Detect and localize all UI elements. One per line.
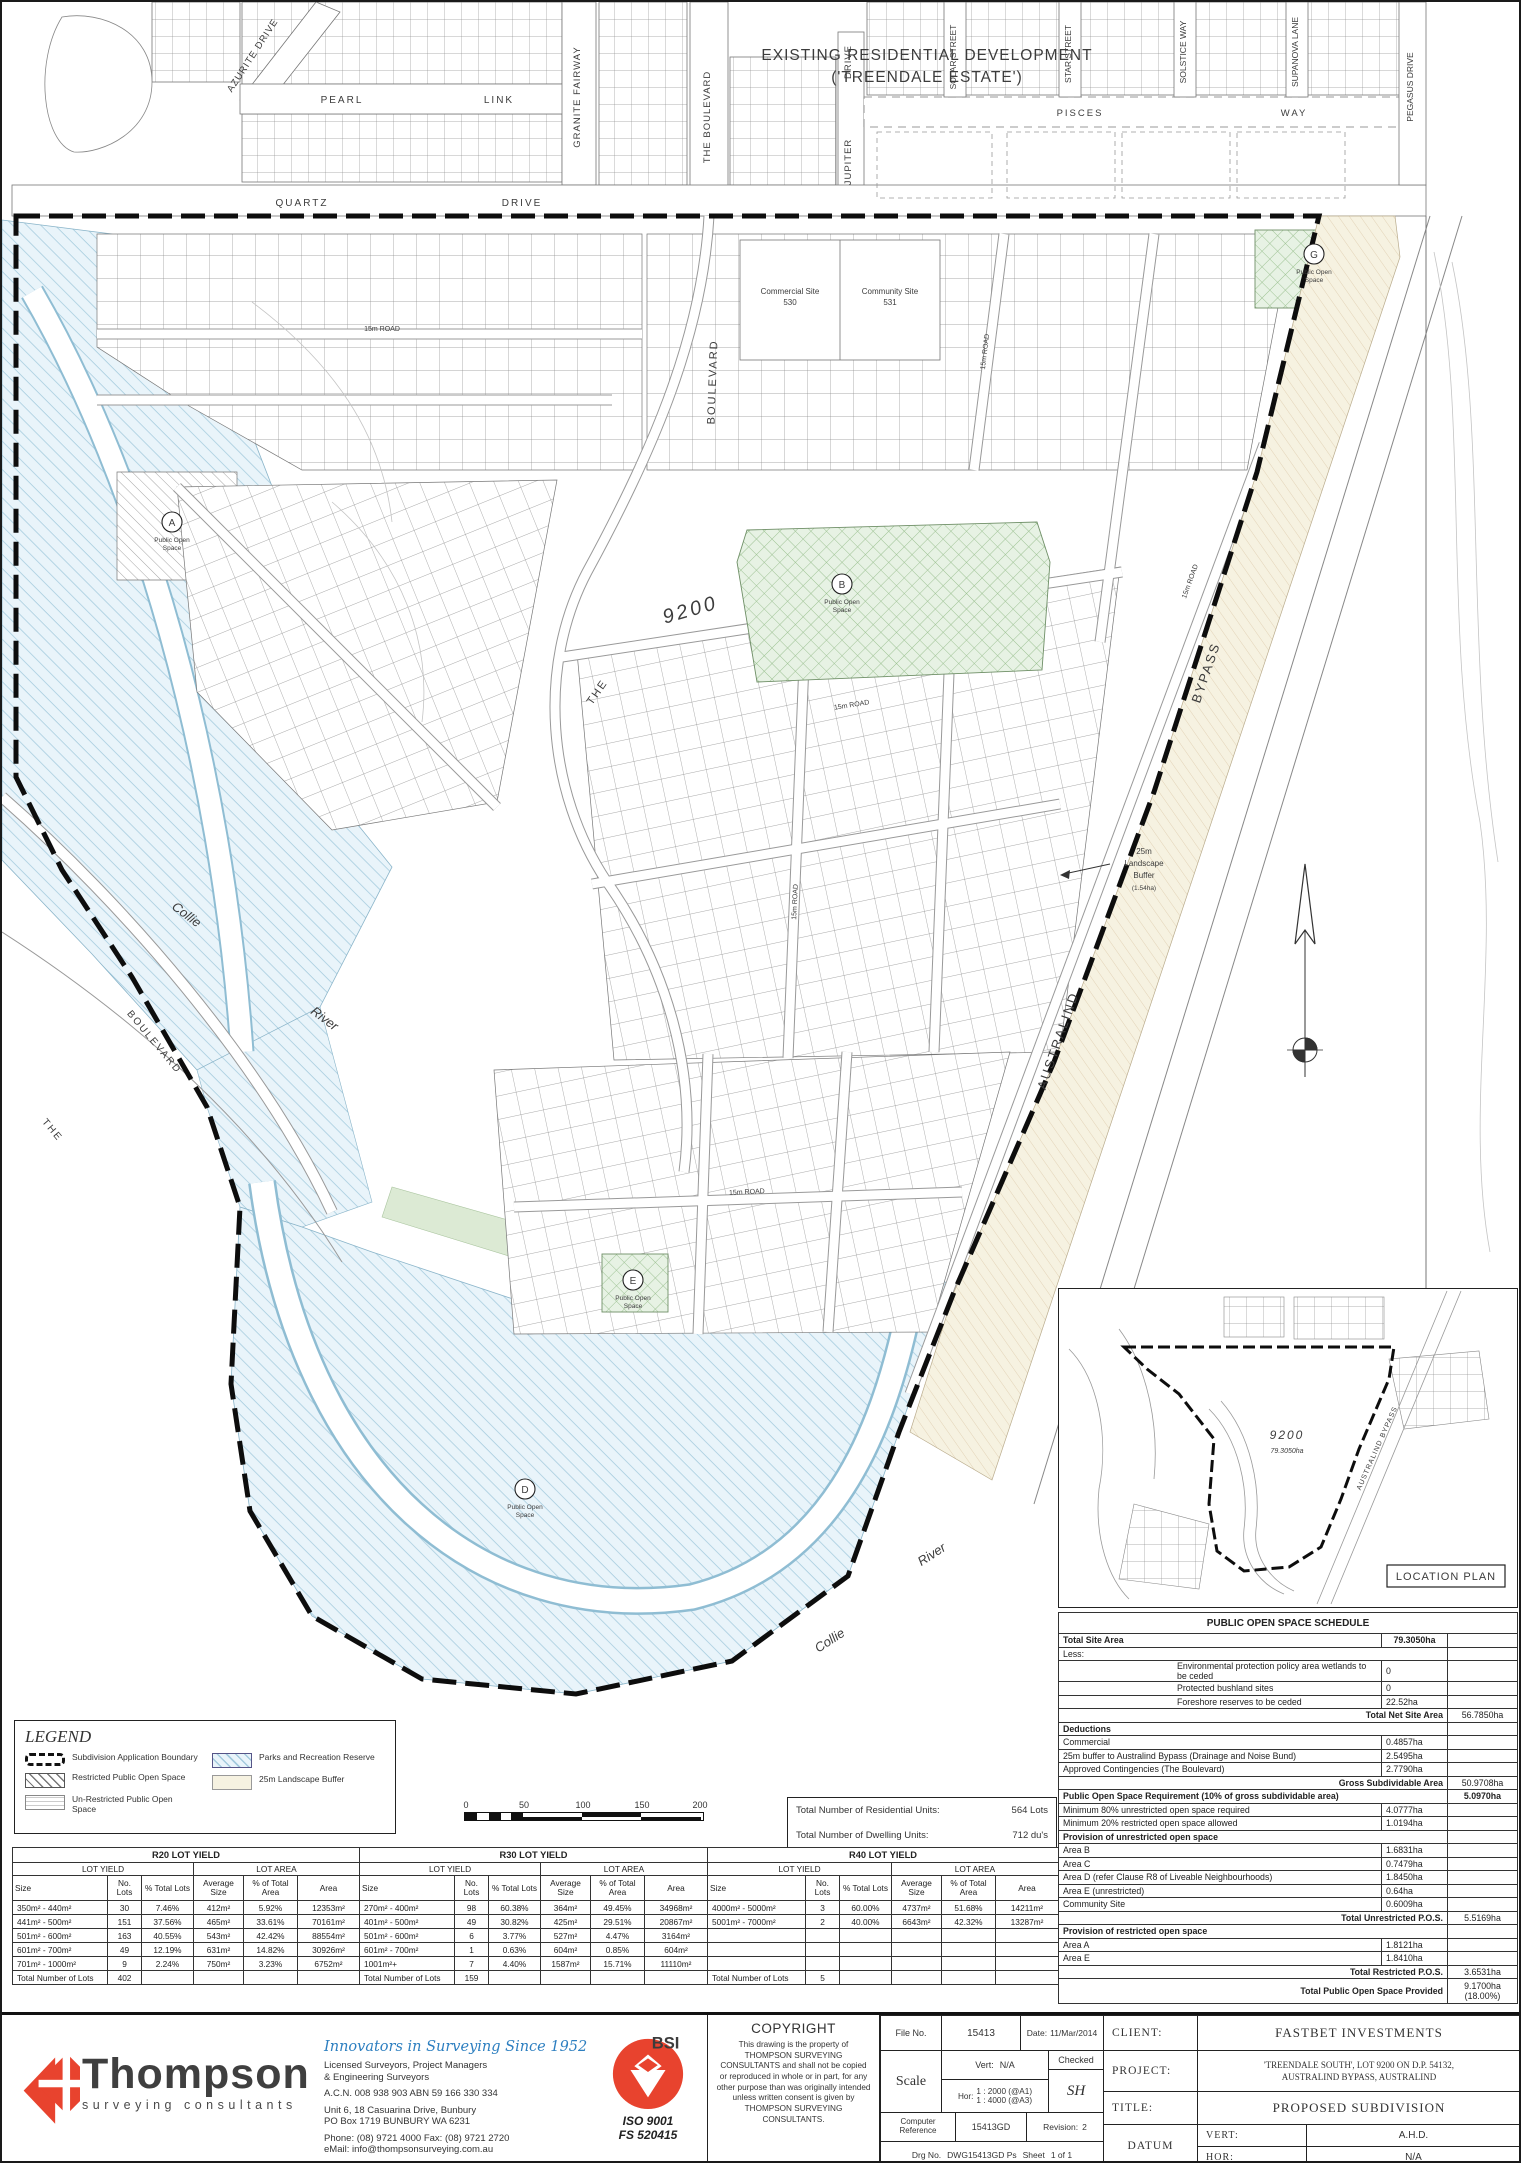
table-cell: 2.5495ha — [1381, 1749, 1447, 1763]
unrestricted-pos-symbol — [25, 1795, 65, 1810]
table-row: 501m² - 600m²16340.55%543m²42.42%88554m² — [13, 1929, 360, 1943]
table-cell: 30.82% — [489, 1915, 541, 1929]
legend-item-unrestricted-pos: Un-Restricted Public Open Space — [25, 1795, 198, 1815]
pos-caption: Public Open — [507, 1504, 543, 1511]
table-cell: Minimum 80% unrestricted open space requ… — [1059, 1803, 1382, 1817]
table-title: R40 LOT YIELD — [708, 1848, 1059, 1863]
pos-caption: Space — [624, 1303, 643, 1310]
dwelling-units-row: Total Number of Dwelling Units: 712 du's — [796, 1830, 1048, 1841]
table-cell: 22.52ha — [1381, 1695, 1447, 1709]
table-row: 601m² - 700m²4912.19%631m²14.82%30926m² — [13, 1943, 360, 1957]
table-cell: 1001m²+ — [360, 1957, 455, 1971]
units-value: 564 Lots — [1012, 1805, 1048, 1816]
table-row: 270m² - 400m²9860.38%364m²49.45%34968m² — [360, 1901, 708, 1915]
datum-hor-label: HOR: — [1197, 2146, 1307, 2163]
location-plan-inset: 9200 79.3050ha AUSTRALIND BYPASS LOCATIO… — [1058, 1288, 1518, 1608]
landscape-buffer-symbol — [212, 1775, 252, 1790]
table-cell: 441m² - 500m² — [13, 1915, 108, 1929]
table-row: 1001m²+74.40%1587m²15.71%11110m² — [360, 1957, 708, 1971]
table-cell: 40.55% — [142, 1929, 194, 1943]
table-cell: 34968m² — [645, 1901, 708, 1915]
group-header: LOT YIELD — [13, 1863, 194, 1876]
col-header: Area — [996, 1876, 1059, 1901]
table-cell: 6752m² — [298, 1957, 360, 1971]
location-plan-lot: 9200 — [1270, 1428, 1305, 1442]
legend-item-buffer: 25m Landscape Buffer — [212, 1775, 385, 1790]
col-header: Average Size — [194, 1876, 244, 1901]
schedule-total-label: Total Restricted P.O.S. — [1059, 1965, 1448, 1979]
thompson-line2: & Engineering Surveyors — [324, 2072, 589, 2084]
col-header: No. Lots — [455, 1876, 489, 1901]
table-row: Protected bushland sites0 — [1059, 1682, 1518, 1696]
table-cell: 60.38% — [489, 1901, 541, 1915]
table-cell: 3.77% — [489, 1929, 541, 1943]
table-cell — [1447, 1938, 1517, 1952]
total-label: Total Number of Lots — [13, 1971, 108, 1985]
table-cell — [708, 1943, 806, 1957]
sheet-label: Sheet — [1023, 2150, 1045, 2160]
bsi-block: BSI ISO 9001 FS 520415 — [600, 2033, 696, 2142]
table-row: Approved Contingencies (The Boulevard)2.… — [1059, 1763, 1518, 1777]
table-cell: 2.7790ha — [1381, 1763, 1447, 1777]
pos-caption: Space — [163, 545, 182, 552]
table-cell — [942, 1943, 996, 1957]
table-cell: 1.8410ha — [1381, 1952, 1447, 1966]
bsi-logo: BSI — [609, 2033, 687, 2111]
group-header: LOT YIELD — [360, 1863, 541, 1876]
scale-hor-a1: 1 : 2000 (@A1) — [976, 2087, 1032, 2096]
legend-item-label: 25m Landscape Buffer — [259, 1775, 344, 1785]
table-cell: 4.47% — [591, 1929, 645, 1943]
schedule-value: 79.3050ha — [1381, 1634, 1447, 1648]
thompson-phone: Phone: (08) 9721 4000 Fax: (08) 9721 272… — [324, 2133, 589, 2145]
table-cell: 42.42% — [244, 1929, 298, 1943]
table-cell — [1447, 1857, 1517, 1871]
street-label-pegasus: PEGASUS DRIVE — [1405, 52, 1415, 122]
bsi-fs: FS 520415 — [600, 2128, 696, 2142]
thompson-addr2: PO Box 1719 BUNBURY WA 6231 — [324, 2116, 589, 2128]
r40-lot-yield-table: R40 LOT YIELD LOT YIELD LOT AREA Size No… — [707, 1847, 1059, 1985]
table-cell: 3.23% — [244, 1957, 298, 1971]
schedule-total-label: Total Unrestricted P.O.S. — [1059, 1911, 1448, 1925]
col-header: % of Total Area — [942, 1876, 996, 1901]
table-cell — [1447, 1952, 1517, 1966]
street-label-pisces-way: WAY — [1281, 108, 1308, 119]
table-cell — [708, 1929, 806, 1943]
table-cell: 527m² — [541, 1929, 591, 1943]
schedule-value: 5.0970ha — [1447, 1790, 1517, 1804]
buffer-note-line: (1.54ha) — [1132, 885, 1156, 892]
scale-hor-cell: Hor: 1 : 2000 (@A1) 1 : 4000 (@A3) — [941, 2079, 1049, 2113]
residential-units-row: Total Number of Residential Units: 564 L… — [796, 1805, 1048, 1816]
drg-value: DWG15413GD Ps — [947, 2150, 1016, 2160]
public-open-space-schedule: PUBLIC OPEN SPACE SCHEDULE Total Site Ar… — [1058, 1612, 1518, 2004]
pos-caption: Public Open — [154, 537, 190, 544]
datum-vert-value: A.H.D. — [1306, 2124, 1521, 2147]
schedule-total-label: Gross Subdividable Area — [1059, 1776, 1448, 1790]
table-row: 501m² - 600m²63.77%527m²4.47%3164m² — [360, 1929, 708, 1943]
units-label: Total Number of Dwelling Units: — [796, 1830, 929, 1841]
sheet-title-label: TITLE: — [1103, 2091, 1198, 2125]
thompson-addr1: Unit 6, 18 Casuarina Drive, Bunbury — [324, 2105, 589, 2117]
table-cell: Community Site — [1059, 1898, 1382, 1912]
schedule-total-label: Total Public Open Space Provided — [1059, 1979, 1448, 2004]
table-cell: 40.00% — [840, 1915, 892, 1929]
table-cell: 42.32% — [942, 1915, 996, 1929]
pos-caption: Space — [516, 1512, 535, 1519]
legend: LEGEND Subdivision Application Boundary … — [14, 1720, 396, 1834]
table-row: Minimum 20% restricted open space allowe… — [1059, 1817, 1518, 1831]
compref-value: 15413GD — [955, 2112, 1027, 2142]
subdivision-plan-sheet: Commercial Site 530 Community Site 531 — [0, 0, 1521, 2163]
table-row: Community Site0.6009ha — [1059, 1898, 1518, 1912]
legend-item-label: Parks and Recreation Reserve — [259, 1753, 375, 1763]
col-header: Average Size — [892, 1876, 942, 1901]
pos-letter: D — [521, 1485, 528, 1496]
date-cell: Date: 11/Mar/2014 — [1020, 2015, 1104, 2051]
col-header: % Total Lots — [840, 1876, 892, 1901]
table-cell: 7 — [455, 1957, 489, 1971]
table-cell: 0.4857ha — [1381, 1736, 1447, 1750]
table-row: 401m² - 500m²4930.82%425m²29.51%20867m² — [360, 1915, 708, 1929]
schedule-label: Total Site Area — [1059, 1634, 1382, 1648]
thompson-contact-block: Innovators in Surveying Since 1952 Licen… — [324, 2039, 589, 2156]
table-cell: 33.61% — [244, 1915, 298, 1929]
table-cell: 4.40% — [489, 1957, 541, 1971]
table-cell: 0.63% — [489, 1943, 541, 1957]
community-site-number: 531 — [883, 298, 897, 307]
table-cell: 11110m² — [645, 1957, 708, 1971]
road-label-15m: 15m ROAD — [364, 326, 400, 333]
table-cell: 70161m² — [298, 1915, 360, 1929]
table-cell: 25m buffer to Australind Bypass (Drainag… — [1059, 1749, 1382, 1763]
table-cell — [806, 1957, 840, 1971]
fileno-value: 15413 — [941, 2015, 1021, 2051]
street-label-boulevard-top: THE BOULEVARD — [702, 71, 713, 164]
buffer-note-line: Landscape — [1124, 859, 1164, 868]
commercial-site-number: 530 — [783, 298, 797, 307]
street-label-supanova: SUPANOVA LANE — [1290, 17, 1300, 87]
date-value: 11/Mar/2014 — [1050, 2028, 1097, 2038]
table-cell: 5.92% — [244, 1901, 298, 1915]
street-label-quartz-drive: DRIVE — [502, 198, 543, 209]
table-cell — [942, 1957, 996, 1971]
pos-caption: Space — [1305, 277, 1324, 284]
legend-item-parks: Parks and Recreation Reserve — [212, 1753, 385, 1768]
table-cell: 12353m² — [298, 1901, 360, 1915]
thompson-email: eMail: info@thompsonsurveying.com.au — [324, 2144, 589, 2156]
pos-letter: G — [1310, 250, 1318, 261]
table-cell: 270m² - 400m² — [360, 1901, 455, 1915]
table-cell: 0.6009ha — [1381, 1898, 1447, 1912]
table-cell: 601m² - 700m² — [13, 1943, 108, 1957]
col-header: Size — [13, 1876, 108, 1901]
table-cell: 1.0194ha — [1381, 1817, 1447, 1831]
scale-tick: 50 — [519, 1800, 529, 1810]
col-header: % Total Lots — [489, 1876, 541, 1901]
date-label: Date: — [1027, 2028, 1047, 2038]
table-row: 5001m² - 7000m²240.00%6643m²42.32%13287m… — [708, 1915, 1059, 1929]
buffer-note-line: Buffer — [1133, 871, 1155, 880]
table-cell: 2.24% — [142, 1957, 194, 1971]
table-row — [708, 1943, 1059, 1957]
table-row: Area E1.8410ha — [1059, 1952, 1518, 1966]
title-block: Thompson surveying consultants Innovator… — [2, 2012, 1521, 2163]
table-cell — [1447, 1884, 1517, 1898]
total-label: Total Number of Lots — [360, 1971, 455, 1985]
table-cell — [1447, 1817, 1517, 1831]
north-arrow — [1287, 864, 1323, 1077]
schedule-label: Less: — [1059, 1647, 1448, 1661]
street-label-solstice: SOLSTICE WAY — [1178, 20, 1188, 83]
project-label: PROJECT: — [1103, 2050, 1198, 2092]
scale-hor-a3: 1 : 4000 (@A3) — [976, 2096, 1032, 2105]
sheet-title-value: PROPOSED SUBDIVISION — [1197, 2091, 1521, 2125]
group-header: LOT AREA — [194, 1863, 360, 1876]
table-cell: 0 — [1381, 1682, 1447, 1696]
table-row: 441m² - 500m²15137.56%465m²33.61%70161m² — [13, 1915, 360, 1929]
table-cell — [1447, 1661, 1517, 1682]
street-label-link: LINK — [484, 95, 514, 106]
project-value: 'TREENDALE SOUTH', LOT 9200 ON D.P. 5413… — [1197, 2050, 1521, 2092]
schedule-total-value: 5.5169ha — [1447, 1911, 1517, 1925]
sheet-value: 1 of 1 — [1051, 2150, 1072, 2160]
group-header: LOT YIELD — [708, 1863, 892, 1876]
col-header: No. Lots — [108, 1876, 142, 1901]
table-cell — [840, 1957, 892, 1971]
table-cell — [996, 1943, 1059, 1957]
total-units-box: Total Number of Residential Units: 564 L… — [787, 1797, 1057, 1849]
table-cell: 1.8450ha — [1381, 1871, 1447, 1885]
checked-label: Checked — [1048, 2050, 1104, 2070]
checked-signature: SH — [1048, 2069, 1104, 2113]
project-line2: AUSTRALIND BYPASS, AUSTRALIND — [1282, 2071, 1436, 2083]
group-header: LOT AREA — [541, 1863, 708, 1876]
copyright-body: This drawing is the property of THOMPSON… — [716, 2040, 871, 2125]
table-cell: 4.0777ha — [1381, 1803, 1447, 1817]
table-cell: 0 — [1381, 1661, 1447, 1682]
table-cell: 350m² - 440m² — [13, 1901, 108, 1915]
table-cell: Commercial — [1059, 1736, 1382, 1750]
copyright-block: COPYRIGHT This drawing is the property o… — [707, 2015, 880, 2163]
datum-hor-value: N/A — [1306, 2146, 1521, 2163]
table-cell: 501m² - 600m² — [13, 1929, 108, 1943]
table-cell — [1447, 1898, 1517, 1912]
table-cell: 6643m² — [892, 1915, 942, 1929]
boundary-symbol — [25, 1753, 65, 1766]
col-header: Area — [298, 1876, 360, 1901]
table-cell: 364m² — [541, 1901, 591, 1915]
pos-letter: B — [839, 580, 846, 591]
schedule-total-value: 9.1700ha (18.00%) — [1447, 1979, 1517, 2004]
table-row — [708, 1929, 1059, 1943]
table-cell: 543m² — [194, 1929, 244, 1943]
table-cell: 7.46% — [142, 1901, 194, 1915]
table-cell: 30 — [108, 1901, 142, 1915]
table-cell — [1447, 1803, 1517, 1817]
table-cell — [892, 1957, 942, 1971]
scale-bar-graphic — [464, 1812, 704, 1821]
table-cell: 13287m² — [996, 1915, 1059, 1929]
table-cell: Protected bushland sites — [1059, 1682, 1382, 1696]
table-cell: 6 — [455, 1929, 489, 1943]
drg-label: Drg No. — [912, 2150, 941, 2160]
thompson-tagline: Innovators in Surveying Since 1952 — [324, 2039, 589, 2055]
location-plan-map: 9200 79.3050ha AUSTRALIND BYPASS LOCATIO… — [1059, 1289, 1516, 1606]
street-label-pearl: PEARL — [321, 95, 364, 106]
table-cell: Area C — [1059, 1857, 1382, 1871]
group-header: LOT AREA — [892, 1863, 1059, 1876]
table-cell — [840, 1943, 892, 1957]
table-cell: 1.6831ha — [1381, 1844, 1447, 1858]
table-cell: 14211m² — [996, 1901, 1059, 1915]
table-cell: 604m² — [645, 1943, 708, 1957]
the-label-left: THE — [39, 1117, 64, 1144]
table-row: Environmental protection policy area wet… — [1059, 1661, 1518, 1682]
scale-vert-cell: Vert: N/A — [941, 2050, 1049, 2080]
table-cell: Area A — [1059, 1938, 1382, 1952]
thompson-logo-text: Thompson surveying consultants — [82, 2053, 310, 2112]
fileno-label: File No. — [880, 2015, 942, 2051]
commercial-community-sites: Commercial Site 530 Community Site 531 — [740, 240, 940, 360]
r20-lot-yield-table: R20 LOT YIELD LOT YIELD LOT AREA Size No… — [12, 1847, 360, 1985]
schedule-total-label: Total Net Site Area — [1059, 1709, 1448, 1723]
pos-letter: A — [169, 518, 176, 529]
table-cell — [892, 1929, 942, 1943]
table-title: R30 LOT YIELD — [360, 1848, 708, 1863]
street-label-granite: GRANITE FAIRWAY — [572, 46, 583, 147]
restricted-pos-symbol — [25, 1773, 65, 1788]
table-cell: 37.56% — [142, 1915, 194, 1929]
table-cell: 604m² — [541, 1943, 591, 1957]
table-cell: Area B — [1059, 1844, 1382, 1858]
schedule-section: Provision of restricted open space — [1059, 1925, 1448, 1939]
table-cell — [1447, 1844, 1517, 1858]
table-row: Minimum 80% unrestricted open space requ… — [1059, 1803, 1518, 1817]
scale-vert-value: N/A — [1000, 2060, 1015, 2070]
table-cell: 88554m² — [298, 1929, 360, 1943]
table-row: 350m² - 440m²307.46%412m²5.92%12353m² — [13, 1901, 360, 1915]
col-header: % Total Lots — [142, 1876, 194, 1901]
buffer-note-line: 25m — [1136, 847, 1152, 856]
project-line1: 'TREENDALE SOUTH', LOT 9200 ON D.P. 5413… — [1264, 2059, 1454, 2071]
table-row — [708, 1957, 1059, 1971]
table-cell: 1.8121ha — [1381, 1938, 1447, 1952]
scale-hor-label: Hor: — [958, 2092, 973, 2101]
table-cell — [1447, 1695, 1517, 1709]
table-cell — [840, 1929, 892, 1943]
table-cell: 151 — [108, 1915, 142, 1929]
river-label-collie-2: Collie — [812, 1625, 847, 1655]
table-cell: 4737m² — [892, 1901, 942, 1915]
thompson-subtitle: surveying consultants — [82, 2098, 310, 2112]
schedule-section: Public Open Space Requirement (10% of gr… — [1059, 1790, 1448, 1804]
table-cell: 14.82% — [244, 1943, 298, 1957]
col-header: No. Lots — [806, 1876, 840, 1901]
table-cell: 425m² — [541, 1915, 591, 1929]
table-cell: Environmental protection policy area wet… — [1059, 1661, 1382, 1682]
table-title: R20 LOT YIELD — [13, 1848, 360, 1863]
street-label-quartz: QUARTZ — [276, 198, 329, 209]
table-row: Area A1.8121ha — [1059, 1938, 1518, 1952]
total-value: 5 — [806, 1971, 840, 1985]
table-cell: 163 — [108, 1929, 142, 1943]
table-cell: 9 — [108, 1957, 142, 1971]
table-row: Area C0.7479ha — [1059, 1857, 1518, 1871]
table-cell: 501m² - 600m² — [360, 1929, 455, 1943]
table-row: Area B1.6831ha — [1059, 1844, 1518, 1858]
scale-label: Scale — [880, 2050, 942, 2113]
table-cell: 49 — [455, 1915, 489, 1929]
legend-title: LEGEND — [25, 1727, 385, 1747]
thompson-name: Thompson — [82, 2053, 310, 2096]
table-cell: 601m² - 700m² — [360, 1943, 455, 1957]
table-cell: 701m² - 1000m² — [13, 1957, 108, 1971]
community-site-label: Community Site — [862, 287, 919, 296]
table-cell: 0.64ha — [1381, 1884, 1447, 1898]
table-cell: 0.7479ha — [1381, 1857, 1447, 1871]
thompson-logo-mark — [22, 2037, 80, 2145]
table-cell: 412m² — [194, 1901, 244, 1915]
legend-item-label: Un-Restricted Public Open Space — [72, 1795, 198, 1815]
legend-item-label: Restricted Public Open Space — [72, 1773, 185, 1783]
client-label: CLIENT: — [1103, 2015, 1198, 2051]
bsi-iso: ISO 9001 — [600, 2114, 696, 2128]
table-cell: 15.71% — [591, 1957, 645, 1971]
table-row: Foreshore reserves to be ceded22.52ha — [1059, 1695, 1518, 1709]
col-header: % of Total Area — [244, 1876, 298, 1901]
table-cell: 29.51% — [591, 1915, 645, 1929]
r30-lot-yield-table: R30 LOT YIELD LOT YIELD LOT AREA Size No… — [359, 1847, 708, 1985]
dev-title-line2: ('TREENDALE ESTATE') — [831, 69, 1023, 86]
schedule-total-value: 50.9708ha — [1447, 1776, 1517, 1790]
location-plan-area: 79.3050ha — [1270, 1448, 1303, 1455]
scale-tick: 150 — [634, 1800, 649, 1810]
dev-title-line1: EXISTING RESIDENTIAL DEVELOPMENT — [761, 47, 1092, 64]
existing-development — [12, 2, 1426, 216]
table-cell: 3 — [806, 1901, 840, 1915]
pos-caption: Public Open — [1296, 269, 1332, 276]
col-header: Size — [708, 1876, 806, 1901]
pos-caption: Public Open — [615, 1295, 651, 1302]
table-cell — [806, 1943, 840, 1957]
table-cell: 1 — [455, 1943, 489, 1957]
table-cell — [1447, 1763, 1517, 1777]
table-cell: 631m² — [194, 1943, 244, 1957]
datum-label: DATUM — [1103, 2124, 1198, 2163]
table-cell — [1447, 1871, 1517, 1885]
scale-tick: 100 — [575, 1800, 590, 1810]
total-value: 159 — [455, 1971, 489, 1985]
street-label-star: STAR STREET — [1063, 25, 1073, 83]
units-label: Total Number of Residential Units: — [796, 1805, 940, 1816]
table-cell: 750m² — [194, 1957, 244, 1971]
revision-label: Revision: — [1043, 2122, 1078, 2132]
street-label-solar: SOLAR STREET — [948, 25, 958, 90]
pos-caption: Space — [833, 607, 852, 614]
table-cell — [708, 1957, 806, 1971]
scale-vert-label: Vert: — [975, 2060, 994, 2070]
table-cell: 49 — [108, 1943, 142, 1957]
table-cell — [892, 1943, 942, 1957]
scale-tick: 200 — [692, 1800, 707, 1810]
copyright-title: COPYRIGHT — [716, 2021, 871, 2036]
revision-cell: Revision: 2 — [1026, 2112, 1104, 2142]
table-cell: 1587m² — [541, 1957, 591, 1971]
location-plan-title: LOCATION PLAN — [1396, 1571, 1496, 1583]
table-cell: 3164m² — [645, 1929, 708, 1943]
table-cell: 0.85% — [591, 1943, 645, 1957]
